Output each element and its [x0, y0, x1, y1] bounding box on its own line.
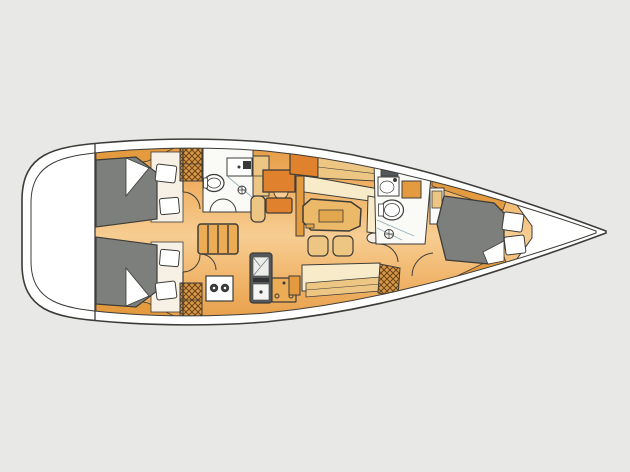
pillow — [155, 281, 177, 300]
aft-head — [203, 146, 253, 212]
yacht-floorplan — [0, 0, 630, 472]
table-step — [306, 224, 314, 228]
stool — [308, 236, 328, 256]
head-locker — [402, 181, 421, 198]
stool — [333, 236, 353, 256]
faucet — [393, 178, 397, 182]
pillow — [155, 164, 177, 183]
pillow — [504, 235, 526, 255]
pillow — [502, 212, 524, 233]
end-cabinet — [289, 276, 300, 295]
burner-center — [224, 287, 227, 290]
unit-divider — [253, 278, 269, 282]
nav-seat — [266, 198, 292, 213]
bench-cushion — [432, 191, 442, 208]
sink-drain — [259, 290, 262, 293]
toilet-tank — [204, 178, 208, 188]
nav-seat-back — [251, 196, 265, 222]
drain-dot — [238, 166, 241, 169]
table-inset — [319, 210, 343, 222]
pillow — [159, 249, 179, 267]
icebox-hinge — [283, 282, 286, 285]
pillow — [159, 197, 179, 215]
yacht-floorplan-stage — [0, 0, 630, 472]
burner-center — [213, 287, 216, 290]
faucet — [243, 161, 251, 169]
toilet — [381, 200, 404, 220]
toilet-tank — [379, 204, 384, 216]
